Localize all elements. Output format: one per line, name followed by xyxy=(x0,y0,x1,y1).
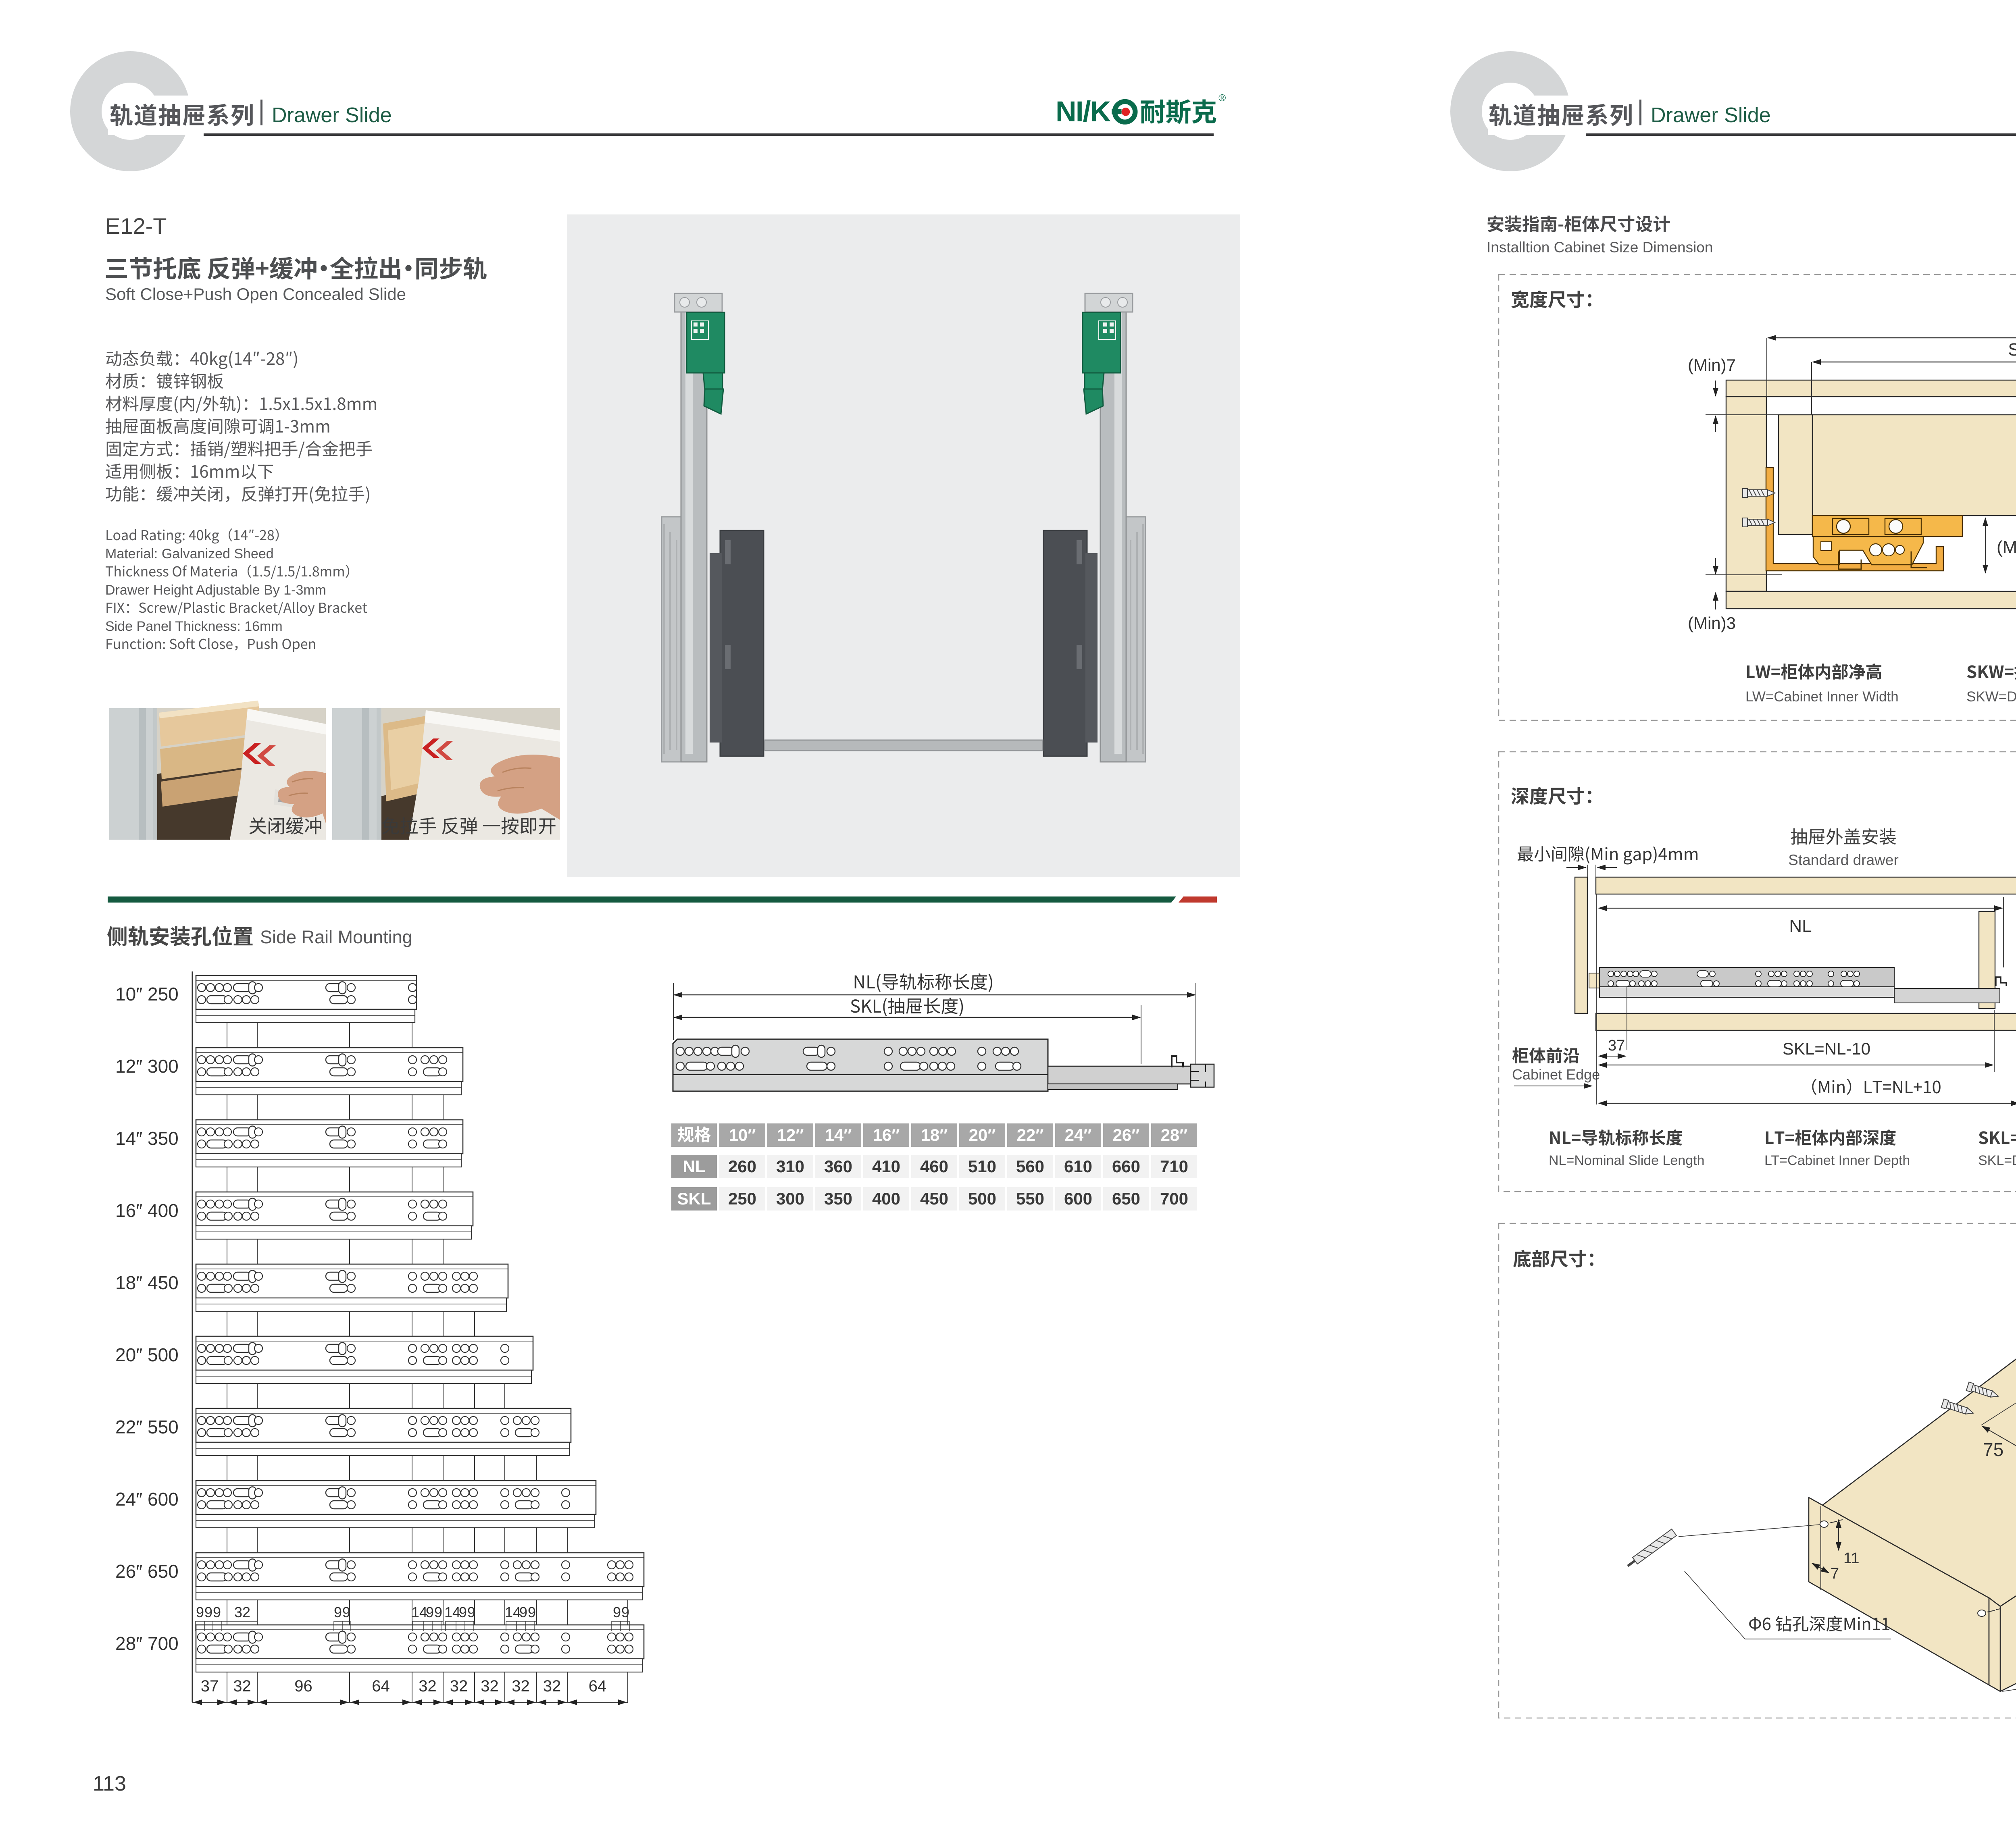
svg-text:64: 64 xyxy=(589,1677,607,1695)
svg-text:NL=Nominal Slide Length: NL=Nominal Slide Length xyxy=(1549,1153,1705,1168)
svg-text:Cabinet Edge: Cabinet Edge xyxy=(1512,1066,1600,1083)
svg-text:SKW=Drawer Width: SKW=Drawer Width xyxy=(1966,689,2016,705)
svg-text:350: 350 xyxy=(824,1189,852,1208)
svg-text:Installtion Cabinet Size Dimen: Installtion Cabinet Size Dimension xyxy=(1487,239,1713,256)
svg-text:600: 600 xyxy=(148,1489,179,1510)
svg-text:310: 310 xyxy=(776,1157,804,1176)
svg-text:(Min)3: (Min)3 xyxy=(1688,614,1736,632)
svg-text:Soft Close+Push Open Concealed: Soft Close+Push Open Concealed Slide xyxy=(105,285,406,304)
svg-text:75: 75 xyxy=(1983,1439,2004,1460)
svg-text:37: 37 xyxy=(201,1677,219,1695)
svg-text:400: 400 xyxy=(148,1200,179,1221)
svg-text:610: 610 xyxy=(1064,1157,1092,1176)
svg-text:350: 350 xyxy=(148,1128,179,1149)
svg-text:18″: 18″ xyxy=(921,1125,948,1144)
svg-text:9: 9 xyxy=(434,1604,442,1620)
svg-text:22″: 22″ xyxy=(115,1416,142,1437)
svg-text:Side Panel Thickness: 16mm: Side Panel Thickness: 16mm xyxy=(105,619,283,634)
svg-text:32: 32 xyxy=(512,1677,530,1695)
svg-text:16″: 16″ xyxy=(115,1200,142,1221)
svg-text:9: 9 xyxy=(613,1604,621,1620)
svg-text:9: 9 xyxy=(196,1604,204,1620)
svg-text:NL: NL xyxy=(683,1157,706,1176)
svg-text:96: 96 xyxy=(294,1677,312,1695)
svg-text:10″: 10″ xyxy=(115,984,142,1005)
svg-text:9: 9 xyxy=(342,1604,350,1620)
svg-text:10″: 10″ xyxy=(729,1125,756,1144)
svg-text:LT=Cabinet Inner Depth: LT=Cabinet Inner Depth xyxy=(1764,1153,1910,1168)
svg-text:9: 9 xyxy=(334,1604,342,1620)
svg-text:32: 32 xyxy=(233,1677,251,1695)
svg-text:450: 450 xyxy=(148,1272,179,1293)
svg-text:Standard drawer: Standard drawer xyxy=(1788,852,1899,868)
svg-text:660: 660 xyxy=(1112,1157,1140,1176)
svg-text:14″: 14″ xyxy=(115,1128,142,1149)
svg-text:26″: 26″ xyxy=(1113,1125,1140,1144)
svg-text:300: 300 xyxy=(776,1189,804,1208)
svg-text:32: 32 xyxy=(450,1677,468,1695)
svg-text:32: 32 xyxy=(543,1677,561,1695)
svg-text:26″: 26″ xyxy=(115,1561,142,1582)
svg-text:(Min)7: (Min)7 xyxy=(1688,356,1736,374)
svg-text:9: 9 xyxy=(213,1604,221,1620)
svg-text:500: 500 xyxy=(148,1344,179,1365)
svg-text:32: 32 xyxy=(419,1677,437,1695)
svg-text:360: 360 xyxy=(824,1157,852,1176)
svg-text:9: 9 xyxy=(426,1604,434,1620)
svg-text:7: 7 xyxy=(1831,1565,1839,1582)
svg-text:NL: NL xyxy=(1789,916,1812,936)
svg-text:SKL: SKL xyxy=(677,1189,711,1208)
svg-text:SKL=NL-10: SKL=NL-10 xyxy=(1783,1039,1870,1058)
svg-text:9: 9 xyxy=(621,1604,629,1620)
svg-text:32: 32 xyxy=(234,1604,250,1620)
svg-text:Material: Galvanized Sheed: Material: Galvanized Sheed xyxy=(105,546,274,562)
svg-text:9: 9 xyxy=(459,1604,467,1620)
svg-text:28″: 28″ xyxy=(1161,1125,1188,1144)
svg-text:22″: 22″ xyxy=(1017,1125,1044,1144)
svg-text:16″: 16″ xyxy=(873,1125,900,1144)
svg-text:®: ® xyxy=(1218,93,1226,104)
svg-text:9: 9 xyxy=(467,1604,475,1620)
svg-text:12″: 12″ xyxy=(777,1125,804,1144)
svg-text:450: 450 xyxy=(920,1189,948,1208)
svg-text:(Min)27.5: (Min)27.5 xyxy=(1997,537,2016,557)
svg-text:12″: 12″ xyxy=(115,1056,142,1077)
svg-text:24″: 24″ xyxy=(1065,1125,1092,1144)
svg-text:NI/K: NI/K xyxy=(1056,96,1111,128)
svg-text:300: 300 xyxy=(148,1056,179,1077)
svg-text:20″: 20″ xyxy=(969,1125,996,1144)
svg-text:14: 14 xyxy=(444,1604,460,1620)
svg-text:710: 710 xyxy=(1160,1157,1188,1176)
svg-text:Drawer Height Adjustable By 1-: Drawer Height Adjustable By 1-3mm xyxy=(105,582,326,598)
svg-text:37: 37 xyxy=(1608,1037,1625,1054)
svg-text:9: 9 xyxy=(528,1604,536,1620)
svg-text:32: 32 xyxy=(481,1677,499,1695)
svg-text:E12-T: E12-T xyxy=(105,213,167,239)
svg-text:28″: 28″ xyxy=(115,1633,142,1654)
svg-text:400: 400 xyxy=(872,1189,900,1208)
svg-text:14″: 14″ xyxy=(825,1125,852,1144)
svg-text:410: 410 xyxy=(872,1157,900,1176)
svg-text:460: 460 xyxy=(920,1157,948,1176)
svg-text:700: 700 xyxy=(148,1633,179,1654)
svg-text:250: 250 xyxy=(728,1189,756,1208)
svg-text:LW=Cabinet Inner Width: LW=Cabinet Inner Width xyxy=(1745,689,1899,705)
svg-text:SKL=Drawer Length: SKL=Drawer Length xyxy=(1978,1153,2016,1168)
svg-text:18″: 18″ xyxy=(115,1272,142,1293)
svg-text:SKW=LW-42: SKW=LW-42 xyxy=(2008,340,2016,360)
svg-text:650: 650 xyxy=(1112,1189,1140,1208)
svg-text:550: 550 xyxy=(1016,1189,1044,1208)
svg-text:650: 650 xyxy=(148,1561,179,1582)
svg-text:Side Rail Mounting: Side Rail Mounting xyxy=(260,927,412,947)
svg-text:64: 64 xyxy=(372,1677,390,1695)
svg-text:550: 550 xyxy=(148,1416,179,1437)
svg-text:600: 600 xyxy=(1064,1189,1092,1208)
svg-text:Drawer Slide: Drawer Slide xyxy=(272,104,392,127)
svg-text:250: 250 xyxy=(148,984,179,1005)
svg-text:260: 260 xyxy=(728,1157,756,1176)
svg-text:510: 510 xyxy=(968,1157,996,1176)
svg-text:560: 560 xyxy=(1016,1157,1044,1176)
svg-text:113: 113 xyxy=(93,1772,126,1795)
svg-text:9: 9 xyxy=(204,1604,212,1620)
svg-text:700: 700 xyxy=(1160,1189,1188,1208)
svg-text:500: 500 xyxy=(968,1189,996,1208)
svg-text:24″: 24″ xyxy=(115,1489,142,1510)
svg-text:Drawer Slide: Drawer Slide xyxy=(1651,104,1771,127)
svg-text:20″: 20″ xyxy=(115,1344,142,1365)
svg-text:9: 9 xyxy=(519,1604,527,1620)
svg-text:14: 14 xyxy=(411,1604,427,1620)
svg-text:11: 11 xyxy=(1843,1550,1859,1567)
svg-text:14: 14 xyxy=(505,1604,521,1620)
